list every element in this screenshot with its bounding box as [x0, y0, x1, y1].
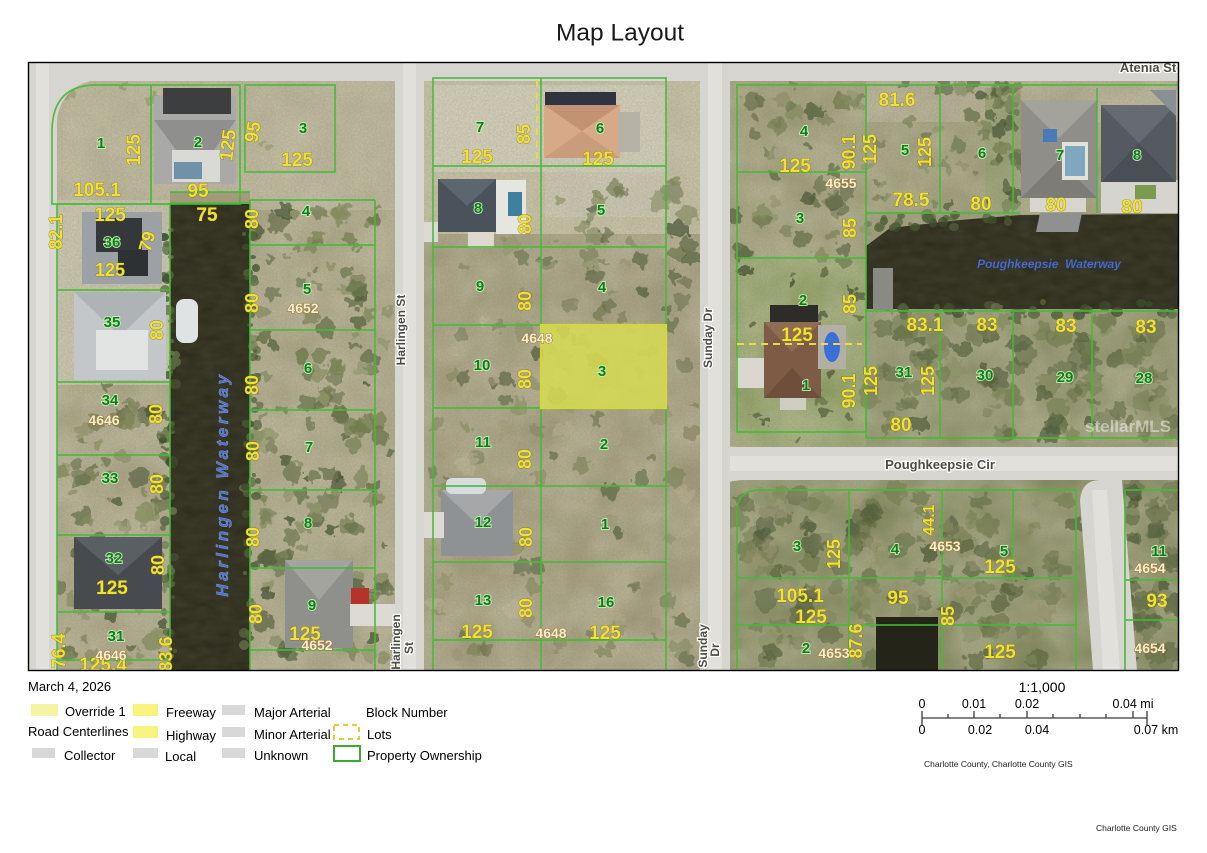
svg-text:5: 5 [1000, 543, 1008, 560]
svg-text:11: 11 [1151, 543, 1167, 560]
svg-text:7: 7 [476, 119, 484, 136]
svg-text:Poughkeepsie Cir: Poughkeepsie Cir [885, 457, 995, 472]
svg-text:125: 125 [461, 147, 493, 168]
svg-text:80: 80 [242, 375, 262, 395]
svg-text:125: 125 [461, 622, 493, 643]
svg-text:Lots: Lots [367, 727, 392, 742]
svg-text:4653: 4653 [818, 645, 849, 661]
svg-text:March 4, 2026: March 4, 2026 [28, 679, 111, 694]
svg-text:80: 80 [516, 527, 536, 547]
svg-text:4655: 4655 [825, 175, 856, 191]
svg-text:90.1: 90.1 [839, 373, 859, 408]
svg-text:29: 29 [1057, 369, 1074, 386]
svg-text:Harlingen: Harlingen [389, 614, 403, 669]
svg-text:5: 5 [901, 142, 909, 159]
svg-text:125: 125 [216, 128, 241, 162]
svg-text:125: 125 [94, 205, 126, 226]
svg-text:105.1: 105.1 [776, 586, 824, 607]
svg-text:125: 125 [860, 134, 880, 164]
svg-text:0: 0 [919, 697, 926, 711]
svg-text:0.04 mi: 0.04 mi [1113, 697, 1154, 711]
svg-text:125: 125 [124, 134, 145, 166]
svg-text:3: 3 [793, 538, 801, 555]
svg-text:125: 125 [781, 325, 813, 346]
svg-text:Unknown: Unknown [254, 748, 308, 763]
svg-text:125: 125 [582, 149, 614, 170]
svg-text:125: 125 [779, 156, 811, 177]
svg-text:80: 80 [890, 415, 911, 436]
svg-text:90.1: 90.1 [839, 134, 859, 169]
svg-text:4653: 4653 [929, 538, 960, 554]
svg-text:Collector: Collector [64, 748, 116, 763]
svg-text:4652: 4652 [301, 637, 332, 653]
svg-text:3: 3 [796, 210, 804, 227]
svg-text:Harlingen St: Harlingen St [394, 295, 408, 366]
svg-text:81.6: 81.6 [879, 90, 916, 111]
svg-text:St: St [402, 642, 416, 654]
svg-text:Local: Local [165, 749, 196, 764]
svg-text:80: 80 [243, 527, 263, 547]
svg-text:8: 8 [304, 515, 312, 532]
svg-text:80: 80 [242, 293, 262, 313]
svg-text:105.1: 105.1 [73, 180, 121, 201]
svg-text:Block Number: Block Number [366, 705, 448, 720]
svg-text:31: 31 [108, 628, 125, 645]
svg-text:80: 80 [146, 404, 166, 424]
svg-text:0: 0 [919, 723, 926, 737]
svg-text:2: 2 [802, 640, 810, 657]
svg-text:Poughkeepsie Waterway: Poughkeepsie Waterway [977, 257, 1122, 271]
svg-text:80: 80 [515, 291, 535, 311]
svg-text:83: 83 [976, 315, 997, 336]
svg-text:80: 80 [970, 194, 991, 215]
svg-text:80: 80 [147, 474, 167, 494]
svg-text:5: 5 [303, 281, 311, 298]
svg-text:1: 1 [97, 135, 105, 152]
svg-text:35: 35 [104, 314, 121, 331]
svg-text:4: 4 [891, 541, 900, 558]
svg-text:2: 2 [600, 436, 608, 453]
svg-text:85: 85 [840, 294, 860, 314]
svg-text:Road Centerlines: Road Centerlines [28, 724, 129, 739]
svg-text:9: 9 [476, 278, 484, 295]
svg-text:Map Layout: Map Layout [556, 20, 684, 47]
svg-text:76.4: 76.4 [49, 633, 69, 668]
svg-text:80: 80 [515, 449, 535, 469]
svg-text:83.6: 83.6 [156, 636, 176, 671]
svg-text:11: 11 [475, 434, 491, 451]
svg-text:6: 6 [596, 120, 604, 137]
svg-text:5: 5 [597, 202, 605, 219]
svg-text:4648: 4648 [521, 330, 552, 346]
svg-text:Sunday Dr: Sunday Dr [701, 308, 715, 368]
svg-text:125: 125 [918, 366, 938, 396]
svg-text:Freeway: Freeway [166, 705, 216, 720]
svg-text:125: 125 [589, 623, 621, 644]
svg-text:6: 6 [978, 145, 986, 162]
svg-text:1: 1 [802, 377, 810, 394]
svg-text:0.04: 0.04 [1025, 723, 1049, 737]
svg-text:125: 125 [984, 557, 1016, 578]
svg-text:125: 125 [915, 137, 935, 167]
svg-text:Major Arterial: Major Arterial [254, 705, 331, 720]
svg-text:125: 125 [984, 642, 1016, 663]
svg-text:80: 80 [246, 604, 266, 624]
svg-text:Charlotte County GIS: Charlotte County GIS [1096, 823, 1177, 833]
svg-text:82.1: 82.1 [46, 214, 66, 249]
svg-text:7: 7 [305, 439, 313, 456]
svg-text:83: 83 [1135, 317, 1156, 338]
svg-text:4646: 4646 [88, 412, 119, 428]
svg-text:0.02: 0.02 [968, 723, 992, 737]
svg-text:1:1,000: 1:1,000 [1019, 679, 1066, 695]
svg-text:125: 125 [95, 260, 125, 280]
svg-text:125: 125 [281, 150, 313, 171]
svg-text:4646: 4646 [95, 647, 126, 663]
svg-text:1: 1 [601, 516, 609, 533]
svg-text:95: 95 [887, 588, 909, 609]
svg-text:80: 80 [147, 320, 167, 340]
svg-text:9: 9 [308, 597, 316, 614]
svg-text:7: 7 [1056, 147, 1064, 164]
svg-text:3: 3 [598, 363, 606, 380]
svg-text:95: 95 [241, 119, 265, 144]
svg-text:75: 75 [196, 205, 218, 226]
svg-text:16: 16 [598, 594, 615, 611]
svg-text:93: 93 [1146, 591, 1167, 612]
svg-text:4654: 4654 [1134, 640, 1165, 656]
svg-text:Highway: Highway [166, 728, 216, 743]
svg-text:34: 34 [102, 392, 119, 409]
svg-text:83.1: 83.1 [907, 315, 944, 336]
svg-text:95: 95 [187, 181, 209, 202]
svg-text:4654: 4654 [1134, 560, 1165, 576]
svg-text:4652: 4652 [287, 300, 318, 316]
svg-text:Property Ownership: Property Ownership [367, 748, 482, 763]
svg-text:0.01: 0.01 [962, 697, 986, 711]
svg-text:80: 80 [515, 214, 535, 234]
svg-text:125: 125 [861, 366, 881, 396]
svg-text:78.5: 78.5 [893, 190, 930, 211]
svg-text:80: 80 [1045, 195, 1066, 216]
svg-text:83: 83 [1055, 316, 1076, 337]
svg-text:0.02: 0.02 [1015, 697, 1039, 711]
svg-text:8: 8 [1133, 147, 1141, 164]
svg-text:85: 85 [938, 606, 958, 626]
svg-text:Dr: Dr [708, 643, 722, 657]
svg-text:80: 80 [516, 598, 536, 618]
svg-text:85: 85 [840, 218, 860, 238]
svg-text:80: 80 [1121, 197, 1142, 218]
svg-text:8: 8 [474, 200, 482, 217]
svg-text:0.07 km: 0.07 km [1134, 723, 1178, 737]
svg-text:12: 12 [475, 514, 492, 531]
svg-text:2: 2 [799, 292, 807, 309]
svg-text:6: 6 [304, 360, 312, 377]
svg-text:33: 33 [102, 470, 119, 487]
svg-text:125: 125 [96, 578, 128, 599]
svg-text:30: 30 [977, 367, 994, 384]
svg-text:13: 13 [475, 592, 492, 609]
svg-text:Minor Arterial: Minor Arterial [254, 727, 331, 742]
svg-text:44.1: 44.1 [921, 504, 938, 535]
svg-text:stellarMLS: stellarMLS [1085, 417, 1171, 436]
svg-text:Charlotte County, Charlotte Co: Charlotte County, Charlotte County GIS [924, 759, 1073, 769]
svg-text:80: 80 [515, 369, 535, 389]
svg-text:2: 2 [194, 134, 202, 151]
svg-text:4: 4 [598, 279, 607, 296]
svg-text:28: 28 [1136, 370, 1153, 387]
svg-text:Override 1: Override 1 [65, 704, 126, 719]
svg-text:80: 80 [148, 555, 168, 575]
svg-text:125: 125 [824, 539, 844, 569]
svg-text:3: 3 [299, 120, 307, 137]
svg-text:4: 4 [302, 203, 311, 220]
svg-text:85: 85 [514, 124, 534, 144]
svg-text:80: 80 [242, 209, 262, 229]
svg-text:Harlingen Waterway: Harlingen Waterway [213, 371, 232, 596]
svg-text:125: 125 [795, 607, 827, 628]
svg-text:32: 32 [106, 550, 123, 567]
svg-text:31: 31 [896, 364, 913, 381]
svg-text:80: 80 [243, 441, 263, 461]
svg-text:4648: 4648 [535, 625, 566, 641]
svg-text:10: 10 [474, 357, 491, 374]
svg-text:4: 4 [800, 123, 809, 140]
svg-text:36: 36 [104, 234, 121, 251]
